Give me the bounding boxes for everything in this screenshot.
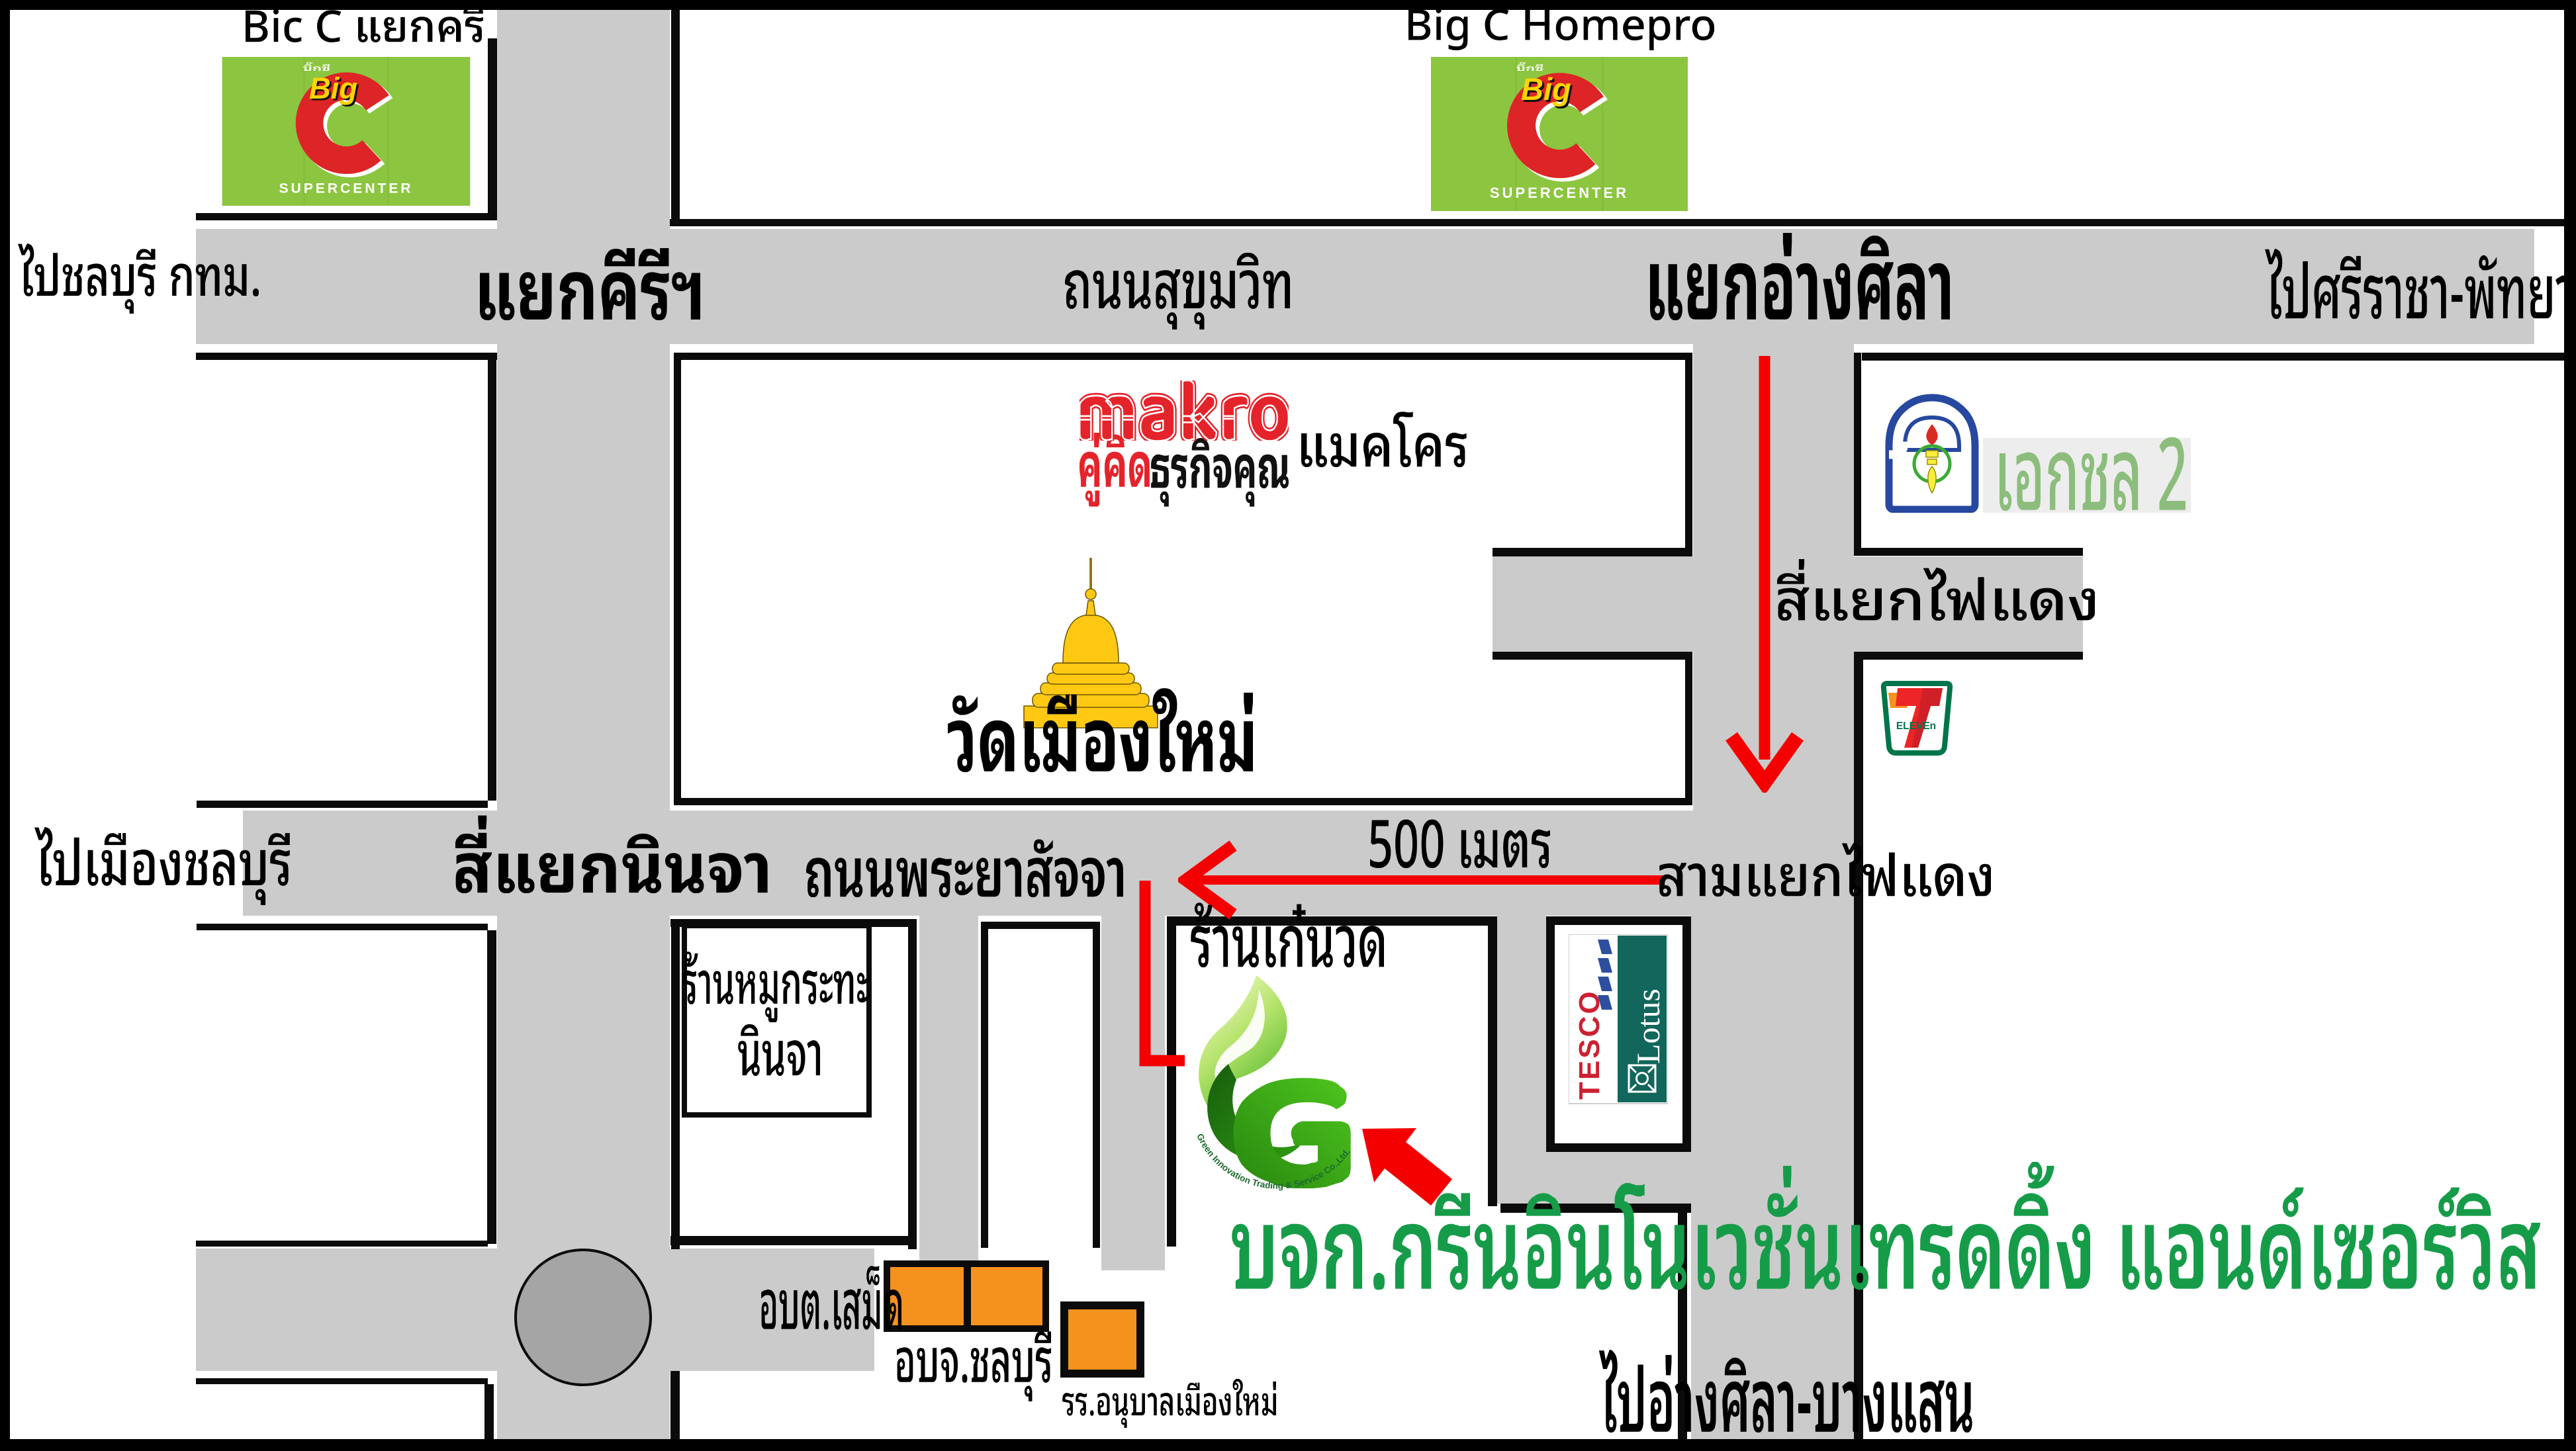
svg-text:SUPERCENTER: SUPERCENTER xyxy=(1490,185,1629,201)
svg-text:ELEVEn: ELEVEn xyxy=(1896,721,1936,732)
svg-text:Big: Big xyxy=(1521,71,1571,107)
svg-text:SUPERCENTER: SUPERCENTER xyxy=(279,181,414,197)
svg-text:Big: Big xyxy=(309,71,357,105)
svg-text:Lotus: Lotus xyxy=(1630,989,1667,1064)
